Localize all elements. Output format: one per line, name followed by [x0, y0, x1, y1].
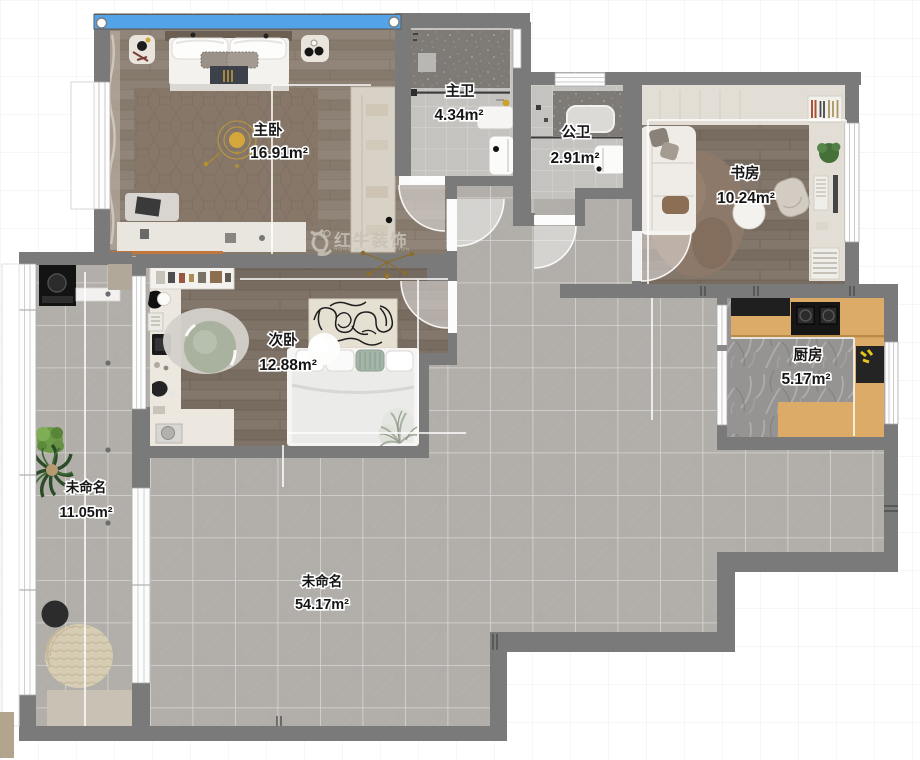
svg-text:4.34m²: 4.34m²: [434, 107, 483, 124]
svg-text:未命名: 未命名: [66, 479, 107, 495]
svg-text:5.17m²: 5.17m²: [781, 371, 830, 388]
svg-text:10.24m²: 10.24m²: [717, 190, 775, 207]
svg-text:书房: 书房: [731, 164, 760, 182]
svg-text:未命名: 未命名: [302, 573, 343, 589]
svg-text:次卧: 次卧: [269, 331, 298, 349]
svg-text:16.91m²: 16.91m²: [250, 145, 308, 162]
svg-text:厨房: 厨房: [794, 346, 823, 364]
svg-text:主卧: 主卧: [254, 121, 283, 139]
svg-text:HONG NIU DECORATION: HONG NIU DECORATION: [334, 247, 410, 252]
svg-text:11.05m²: 11.05m²: [59, 505, 112, 521]
svg-text:54.17m²: 54.17m²: [295, 597, 349, 613]
svg-text:主卫: 主卫: [446, 82, 475, 100]
svg-text:公卫: 公卫: [562, 124, 591, 141]
svg-text:12.88m²: 12.88m²: [259, 357, 317, 374]
svg-text:2.91m²: 2.91m²: [550, 150, 599, 167]
